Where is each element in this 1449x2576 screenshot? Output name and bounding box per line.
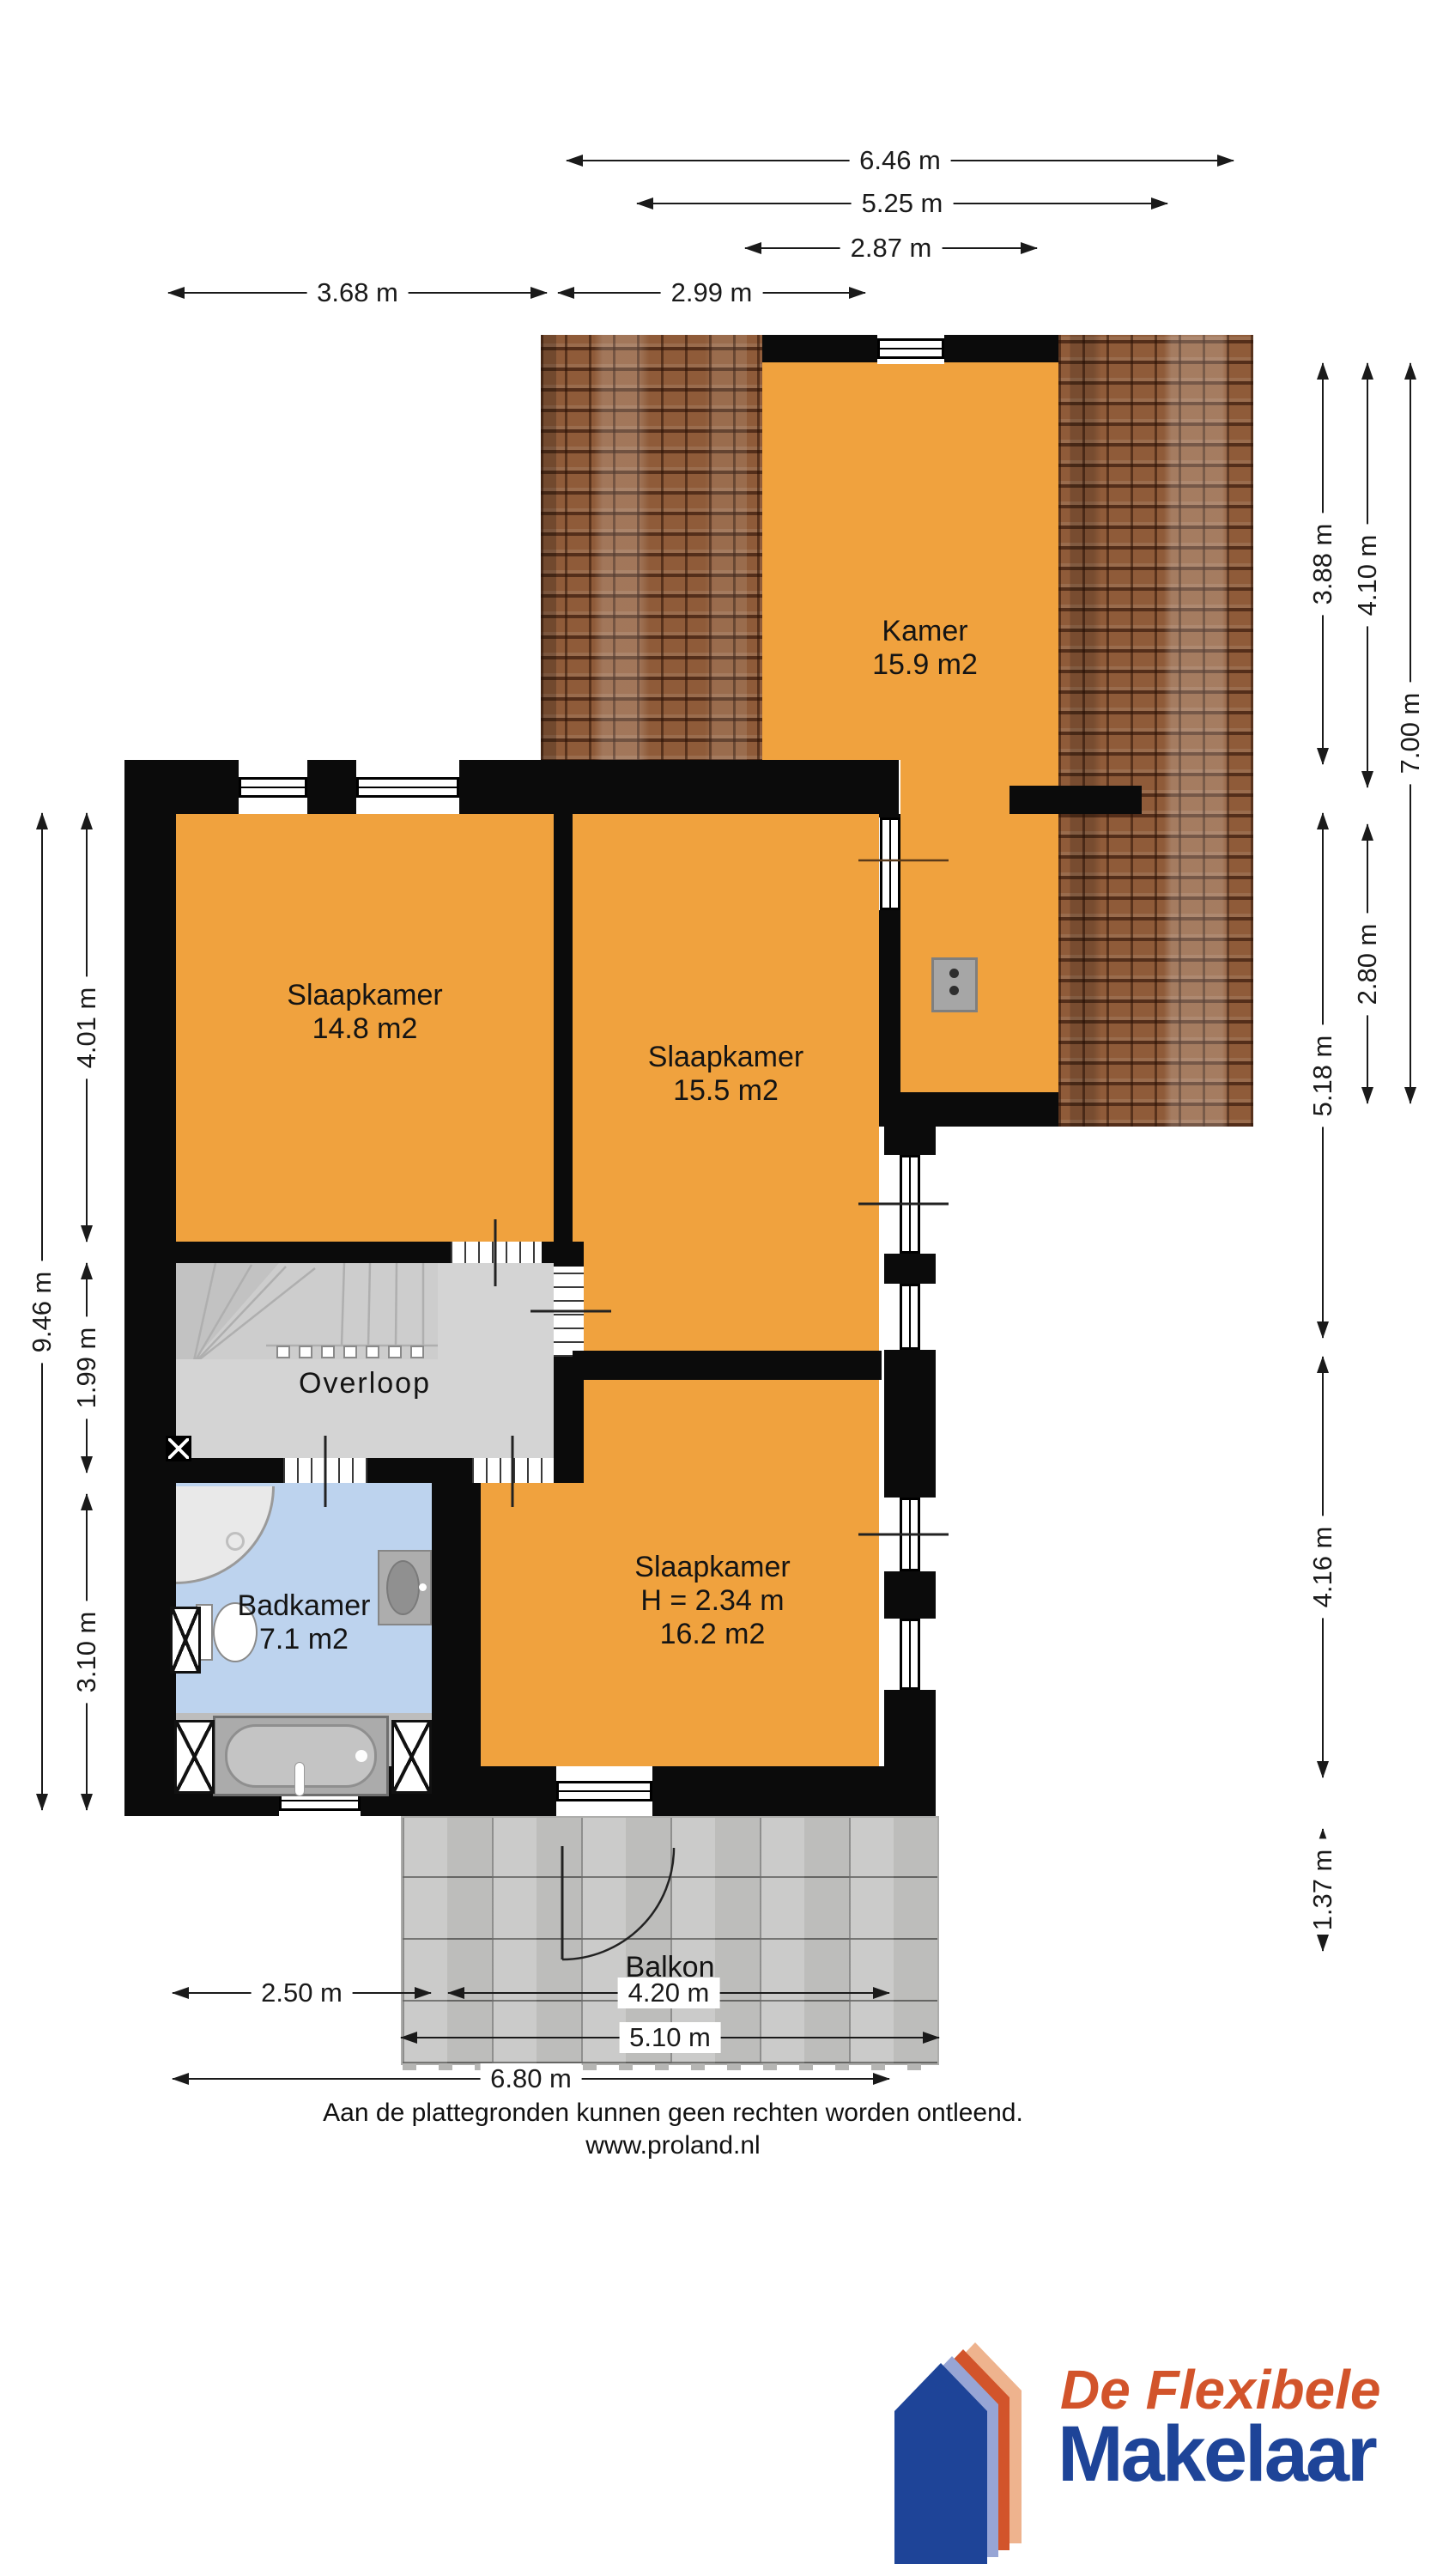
dim-label: 9.46 m: [27, 1261, 58, 1363]
dim-left-3: 1.99 m: [86, 1263, 88, 1473]
dim-label: 2.80 m: [1352, 913, 1383, 1015]
dim-label: 4.16 m: [1307, 1516, 1338, 1619]
room-label-badkamer: Badkamer7.1 m2: [176, 1589, 432, 1656]
website-text: www.proland.nl: [295, 2129, 1051, 2162]
dim-label: 4.20 m: [618, 1978, 720, 2008]
dim-right-5: 4.10 m: [1367, 363, 1368, 787]
dim-bottom-4: 6.80 m: [173, 2078, 889, 2080]
dim-label: 3.10 m: [71, 1601, 102, 1704]
dim-left-4: 3.10 m: [86, 1494, 88, 1810]
dim-right-7: 7.00 m: [1410, 363, 1411, 1103]
footer-disclaimer: Aan de plattegronden kunnen geen rechten…: [295, 2097, 1051, 2162]
room-label-overloop: Overloop: [176, 1367, 554, 1400]
dim-right-6: 2.80 m: [1367, 824, 1368, 1103]
dim-label: 4.01 m: [71, 976, 102, 1078]
dim-right-4: 1.37 m: [1322, 1829, 1324, 1951]
dim-label: 4.10 m: [1352, 525, 1383, 627]
dim-left-2: 4.01 m: [86, 813, 88, 1242]
dim-label: 6.80 m: [480, 2063, 582, 2094]
dim-right-2: 5.18 m: [1322, 813, 1324, 1338]
room-label-slaapkamer-left: Slaapkamer14.8 m2: [176, 979, 554, 1046]
dim-label: 1.99 m: [71, 1317, 102, 1419]
logo-brand: Makelaar: [1058, 2409, 1375, 2500]
dim-label: 5.18 m: [1307, 1024, 1338, 1127]
room-label-slaapkamer-bottom: Slaapkamer H = 2.34 m 16.2 m2: [549, 1551, 876, 1651]
dim-bottom-2: 4.20 m: [448, 1992, 889, 1994]
dim-bottom-3: 5.10 m: [401, 2037, 939, 2038]
dim-label: 7.00 m: [1395, 683, 1426, 785]
dim-right-3: 4.16 m: [1322, 1357, 1324, 1777]
dim-label: 5.10 m: [619, 2022, 721, 2053]
dim-left-1: 9.46 m: [41, 813, 43, 1810]
dim-bottom-1: 2.50 m: [173, 1992, 431, 1994]
room-label-slaapkamer-mid: Slaapkamer15.5 m2: [573, 1041, 879, 1108]
disclaimer-text: Aan de plattegronden kunnen geen rechten…: [295, 2097, 1051, 2129]
dim-right-1: 3.88 m: [1322, 363, 1324, 764]
door-swing-overlay: [0, 0, 1449, 2576]
floor-plan-canvas: 6.46 m 5.25 m 2.87 m 3.68 m 2.99 m Balko…: [0, 0, 1449, 2576]
door-arc-icon: [562, 1848, 674, 1959]
dim-label: 1.37 m: [1307, 1839, 1338, 1941]
dim-label: 3.88 m: [1307, 513, 1338, 615]
dim-label: 2.50 m: [251, 1978, 353, 2008]
logo-house-icon: [894, 2337, 1023, 2566]
